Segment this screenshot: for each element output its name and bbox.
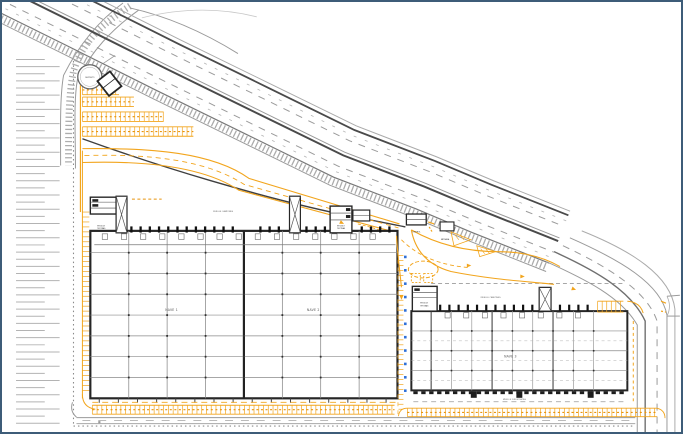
south-service-road	[72, 402, 665, 423]
inter-building-lane	[398, 252, 407, 414]
label-nave-3: NAVE 3	[504, 355, 517, 359]
label-office-module-3-line2: OFICINAS	[420, 304, 429, 307]
label-office-module-2-line1: MODULO	[337, 225, 345, 227]
slope-hatching	[16, 59, 60, 423]
label-gatehouse: CONTROL	[412, 231, 421, 233]
label-nave-1: NAVE 1	[165, 308, 178, 312]
label-office-module-1-line1: MODULO	[97, 225, 105, 227]
warehouse-left	[90, 196, 397, 403]
site-plan-drawing: NAVE 1 NAVE 2 NAVE 3 MUELLE CAMIONES MUE…	[2, 2, 681, 432]
label-office-module-2-line2: OFICINAS	[337, 227, 346, 230]
label-truck-docks-left: MUELLE CAMIONES	[213, 210, 234, 213]
warehouse-right	[411, 283, 643, 402]
label-entrance: ENTRADA	[441, 238, 450, 241]
label-van-docks: MUELLE FURGONETAS	[503, 398, 527, 401]
label-water-tank: DEPOSITO	[85, 77, 95, 79]
label-nave-2: NAVE 2	[307, 308, 320, 312]
site-plan-frame: NAVE 1 NAVE 2 NAVE 3 MUELLE CAMIONES MUE…	[0, 0, 683, 434]
label-office-module-1-line2: OFICINAS	[97, 227, 106, 230]
label-truck-docks-right: MUELLE CAMIONES	[481, 296, 502, 299]
label-office-module-3-line1: MODULO	[420, 303, 428, 305]
